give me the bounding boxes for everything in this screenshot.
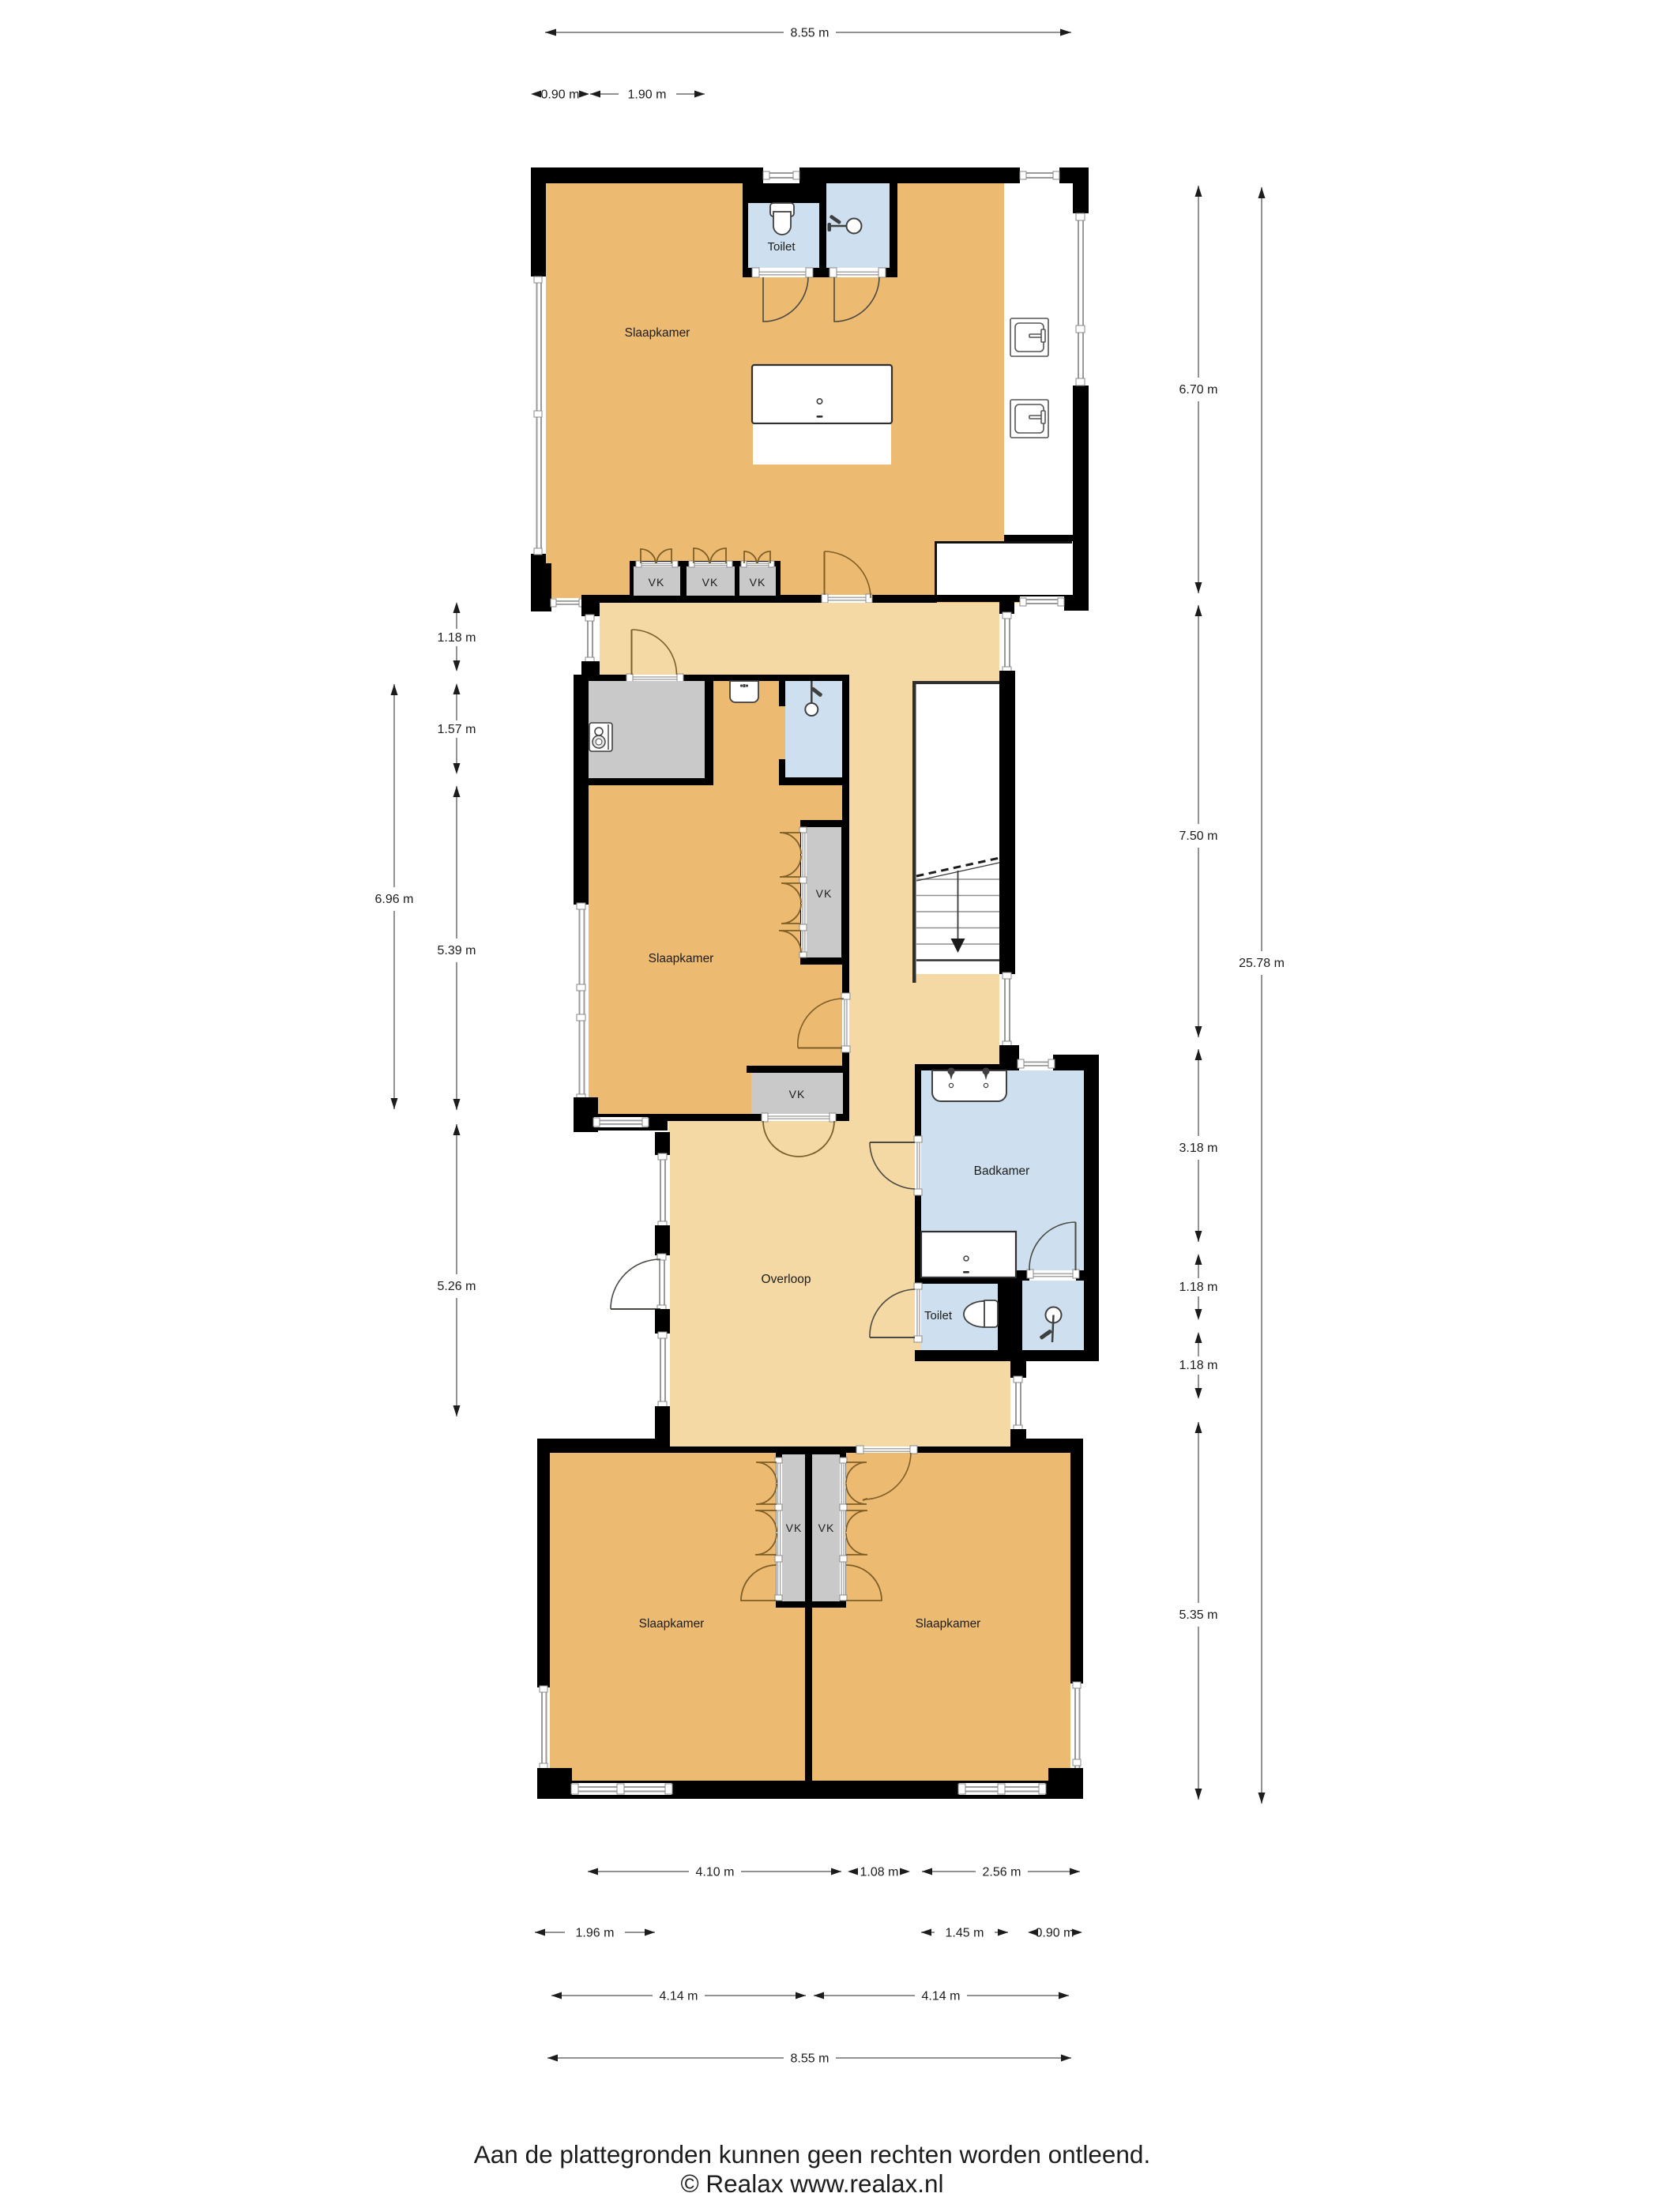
svg-text:0.90 m: 0.90 m (541, 88, 580, 102)
svg-text:25.78 m: 25.78 m (1239, 957, 1285, 970)
svg-text:3.18 m: 3.18 m (1179, 1142, 1218, 1155)
svg-text:5.39 m: 5.39 m (438, 944, 476, 957)
svg-text:5.35 m: 5.35 m (1179, 1608, 1218, 1622)
svg-text:4.10 m: 4.10 m (696, 1866, 735, 1879)
svg-text:7.50 m: 7.50 m (1179, 829, 1218, 843)
svg-text:Slaapkamer: Slaapkamer (916, 1617, 981, 1631)
svg-text:8.55 m: 8.55 m (791, 27, 829, 40)
svg-text:VK: VK (786, 1522, 803, 1534)
svg-text:1.18 m: 1.18 m (1179, 1281, 1218, 1294)
svg-text:1.18 m: 1.18 m (438, 631, 476, 645)
svg-text:1.18 m: 1.18 m (1179, 1359, 1218, 1372)
svg-text:Toilet: Toilet (767, 240, 796, 254)
svg-text:1.90 m: 1.90 m (628, 88, 667, 102)
svg-text:8.55 m: 8.55 m (791, 2052, 829, 2066)
svg-text:VK: VK (649, 576, 665, 589)
svg-text:VK: VK (750, 576, 766, 589)
svg-text:VK: VK (816, 887, 833, 900)
svg-text:6.96 m: 6.96 m (375, 893, 414, 906)
svg-text:VK: VK (789, 1088, 806, 1100)
svg-text:1.08 m: 1.08 m (860, 1866, 899, 1879)
svg-text:2.56 m: 2.56 m (983, 1866, 1021, 1879)
svg-text:Slaapkamer: Slaapkamer (625, 326, 690, 340)
svg-text:© Realax www.realax.nl: © Realax www.realax.nl (680, 2169, 943, 2198)
svg-text:Slaapkamer: Slaapkamer (649, 952, 714, 965)
svg-text:6.70 m: 6.70 m (1179, 383, 1218, 397)
svg-text:Badkamer: Badkamer (974, 1164, 1030, 1178)
svg-text:1.45 m: 1.45 m (946, 1927, 984, 1940)
svg-text:0.90 m: 0.90 m (1036, 1927, 1074, 1940)
svg-text:VK: VK (702, 576, 719, 589)
svg-text:Overloop: Overloop (762, 1273, 811, 1286)
svg-text:4.14 m: 4.14 m (922, 1990, 961, 2003)
svg-text:VK: VK (818, 1522, 835, 1534)
svg-text:4.14 m: 4.14 m (660, 1990, 698, 2003)
svg-text:5.26 m: 5.26 m (438, 1280, 476, 1293)
svg-text:Aan de plattegronden kunnen ge: Aan de plattegronden kunnen geen rechten… (474, 2140, 1150, 2169)
svg-text:Toilet: Toilet (924, 1309, 953, 1322)
svg-text:Slaapkamer: Slaapkamer (639, 1617, 705, 1631)
svg-text:1.57 m: 1.57 m (438, 723, 476, 736)
svg-text:1.96 m: 1.96 m (576, 1927, 615, 1940)
